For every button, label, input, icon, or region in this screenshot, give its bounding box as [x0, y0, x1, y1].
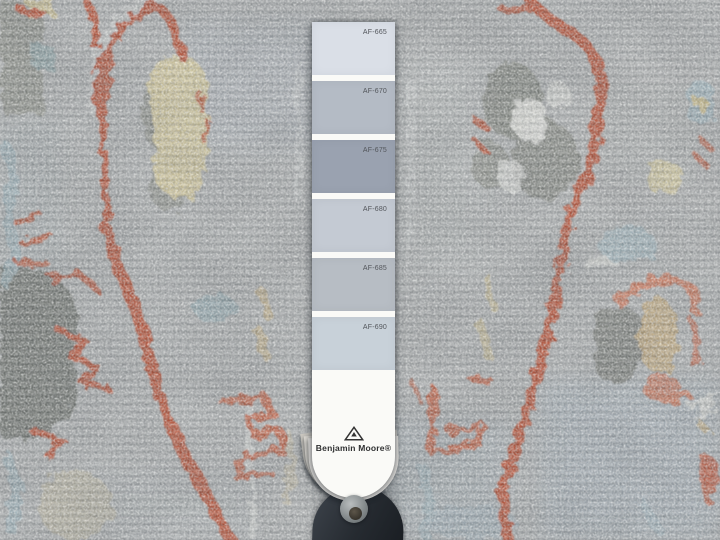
- brand-name: Benjamin Moore®: [312, 443, 395, 453]
- benjamin-moore-triangle-icon: [344, 426, 364, 441]
- paint-swatch: AF-690: [312, 317, 395, 370]
- swatch-code-label: AF-680: [363, 206, 387, 214]
- paint-swatch-strip: AF-665 AF-670 AF-675 AF-680 AF-685 AF-69…: [312, 22, 395, 498]
- grommet: [340, 495, 368, 523]
- swatch-code-label: AF-670: [363, 88, 387, 96]
- paint-swatch: AF-680: [312, 199, 395, 252]
- rug-photo-scene: AF-665 AF-670 AF-675 AF-680 AF-685 AF-69…: [0, 0, 720, 540]
- swatch-code-label: AF-675: [363, 147, 387, 155]
- paint-swatch: AF-665: [312, 22, 395, 75]
- strip-footer: Benjamin Moore®: [312, 426, 395, 453]
- paint-swatch: AF-675: [312, 140, 395, 193]
- swatch-code-label: AF-665: [363, 29, 387, 37]
- swatch-code-label: AF-690: [363, 324, 387, 332]
- swatch-code-label: AF-685: [363, 265, 387, 273]
- paint-swatch: AF-685: [312, 258, 395, 311]
- paint-swatch: AF-670: [312, 81, 395, 134]
